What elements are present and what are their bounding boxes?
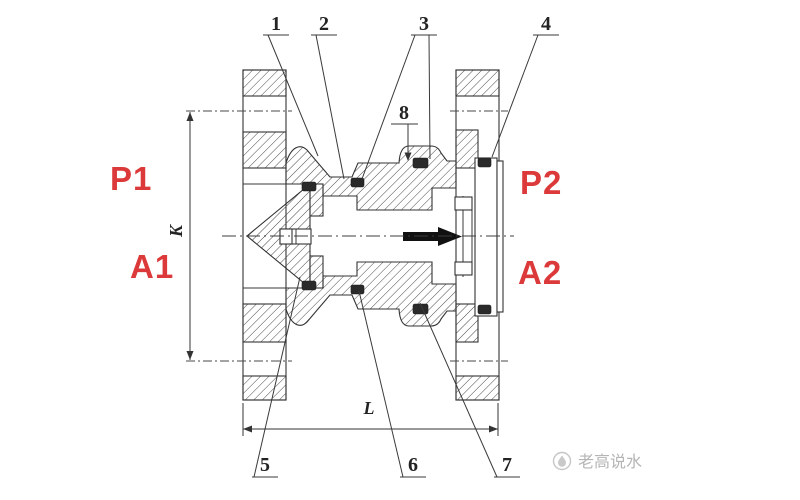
callout-number: 3 xyxy=(419,13,429,35)
callout-number: 8 xyxy=(399,102,409,124)
seal-bottom-left xyxy=(302,281,316,290)
port-label-p1: P1 xyxy=(110,160,152,197)
dimension-L-label: L xyxy=(363,398,375,418)
callout-number: 7 xyxy=(502,454,512,476)
end-cap xyxy=(475,158,503,316)
water-drop-icon xyxy=(558,456,566,467)
seal-bottom-mid xyxy=(351,285,364,294)
port-label-a2: A2 xyxy=(518,254,562,291)
watermark-text: 老高说水 xyxy=(578,453,642,471)
seal-top-left xyxy=(302,182,316,191)
dimension-K: K xyxy=(166,112,194,360)
seal-top-mid xyxy=(351,178,364,187)
seal-bottom-gland xyxy=(413,304,428,314)
valve-section-drawing: K L 1 2 3 4 8 5 6 xyxy=(0,0,800,500)
callout-number: 1 xyxy=(271,13,281,35)
callout-number: 5 xyxy=(260,454,270,476)
callout-number: 4 xyxy=(541,13,551,35)
watermark: 老高说水 xyxy=(554,453,643,472)
callout-4: 4 xyxy=(492,13,559,157)
seal-top-right xyxy=(478,158,491,167)
callout-2: 2 xyxy=(311,13,344,179)
dimension-K-label: K xyxy=(166,223,186,238)
port-label-a1: A1 xyxy=(130,248,174,285)
seal-top-gland xyxy=(413,158,428,168)
dimension-L: L xyxy=(243,398,498,436)
callout-number: 6 xyxy=(408,454,418,476)
port-label-p2: P2 xyxy=(520,164,562,201)
valve-drawing-canvas: K L 1 2 3 4 8 5 6 xyxy=(0,0,800,500)
seal-bottom-right xyxy=(478,305,491,314)
callout-number: 2 xyxy=(319,13,329,35)
